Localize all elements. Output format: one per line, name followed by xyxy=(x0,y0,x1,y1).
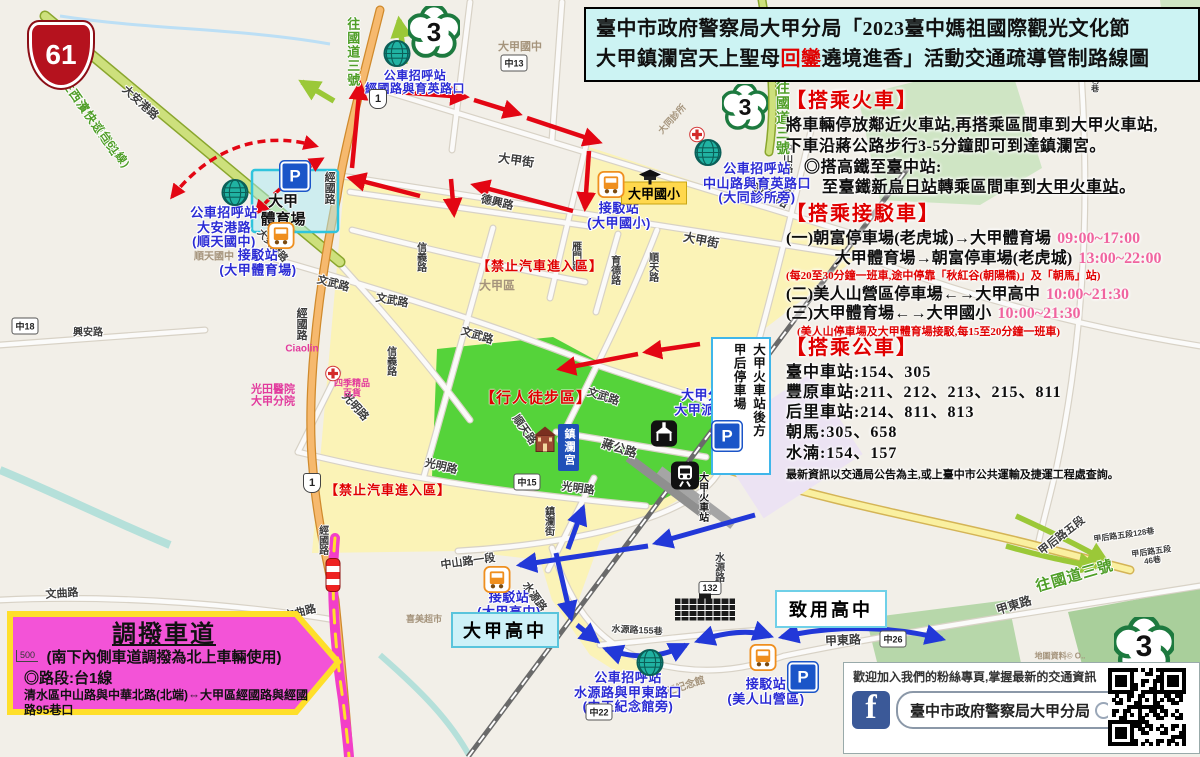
shuttle-route: (二)美人山營區停車場←→大甲高中 xyxy=(786,286,1040,303)
bus-line: 后里車站:214、811、813 xyxy=(786,403,1198,423)
train-line3: ◎搭高鐵至臺中站: xyxy=(786,158,1198,179)
zhiyong-highschool-label: 致用高中 xyxy=(775,590,887,628)
bus-lines: 臺中車站:154、305豐原車站:211、212、213、215、811后里車站… xyxy=(786,363,1198,464)
shuttle-time: 09:00~17:00 xyxy=(1057,230,1140,247)
train-line1: 將車輛停放鄰近火車站,再搭乘區間車到大甲火車站, xyxy=(786,116,1198,137)
lane-line3: 清水區中山路與中華北路(北端)⇔大甲區經國路與經國路95巷口 xyxy=(20,688,308,718)
shuttle-route: 大甲體育場→朝富停車場(老虎城) xyxy=(786,250,1072,267)
shuttle-row: (三)大甲體育場←→大甲國小10:00~21:30 xyxy=(786,304,1198,324)
shuttle-header: 【搭乘接駁車】 xyxy=(786,197,1198,226)
stadium-label: 大甲 體育場 xyxy=(260,193,305,229)
shuttle-row: (二)美人山營區停車場←→大甲高中10:00~21:30 xyxy=(786,285,1198,305)
title-line1: 臺中市政府警察局大甲分局「2023臺中媽祖國際觀光文化節 xyxy=(596,14,1190,44)
train-line2: 下車沿蔣公路步行3-5分鐘即可到達鎮瀾宮。 xyxy=(786,137,1198,158)
train-info-section: 【搭乘火車】 將車輛停放鄰近火車站,再搭乘區間車到大甲火車站, 下車沿蔣公路步行… xyxy=(786,84,1198,199)
contraflow-lane-box: 調撥車道 (南下內側車道調撥為北上車輛使用) ◎路段:台1線 清水區中山路與中華… xyxy=(6,610,346,716)
station-rear-parking-label: 大甲火車站後方 甲后停車場 xyxy=(711,337,771,475)
lane-line1: (南下內側車道調撥為北上車輛使用) xyxy=(20,649,308,667)
map-title: 臺中市政府警察局大甲分局「2023臺中媽祖國際觀光文化節 大甲鎮瀾宮天上聖母回鑾… xyxy=(584,7,1200,82)
scale-marker: 500 xyxy=(16,650,38,662)
lane-line2: ◎路段:台1線 xyxy=(20,667,308,688)
shuttle-note: (每20至30分鐘一班車,途中停靠「秋紅谷(朝陽橋)」及「朝馬」站) xyxy=(786,268,1198,285)
parking-label-line2: 甲后停車場 xyxy=(728,343,747,469)
shuttle-time: 10:00~21:30 xyxy=(997,305,1080,322)
bus-info-section: 【搭乘公車】 臺中車站:154、305豐原車站:211、212、213、215、… xyxy=(786,331,1198,482)
title-highlight: 回鑾 xyxy=(781,48,822,70)
title-line2: 大甲鎮瀾宮天上聖母回鑾遶境進香」活動交通疏導管制路線圖 xyxy=(596,44,1190,74)
shuttle-row: 大甲體育場→朝富停車場(老虎城)13:00~22:00 xyxy=(786,249,1198,269)
bus-note: 最新資訊以交通局公告為主,或上臺中市公共運輸及捷運工程處查詢。 xyxy=(786,466,1198,482)
bus-line: 臺中車站:154、305 xyxy=(786,363,1198,383)
parking-label-line1: 大甲火車站後方 xyxy=(748,343,767,469)
shuttle-info-section: 【搭乘接駁車】 (一)朝富停車場(老虎城)→大甲體育場09:00~17:00 大… xyxy=(786,197,1198,340)
shuttle-route: (一)朝富停車場(老虎城)→大甲體育場 xyxy=(786,230,1051,247)
shuttle-time: 13:00~22:00 xyxy=(1078,250,1161,267)
facebook-icon[interactable]: f xyxy=(852,691,890,729)
shuttle-row: (一)朝富停車場(老虎城)→大甲體育場09:00~17:00 xyxy=(786,229,1198,249)
fanpage-search[interactable]: 臺中市政府警察局大甲分局 xyxy=(896,691,1128,729)
qr-code xyxy=(1108,668,1186,746)
fanpage-message: 歡迎加入我們的粉絲專頁,掌握最新的交通資訊 xyxy=(853,668,1096,685)
bus-line: 朝馬:305、658 xyxy=(786,423,1198,443)
fanpage-search-text: 臺中市政府警察局大甲分局 xyxy=(910,700,1090,721)
traffic-control-map: 文武路文武路文武路文武路育英路大甲街大甲街德興路雁門路中山路一段中山路一段蔣公路… xyxy=(0,0,1200,757)
dajia-elementary-label: 大甲國小 xyxy=(621,182,687,205)
dajia-highschool-label: 大甲高中 xyxy=(451,612,559,648)
train-header: 【搭乘火車】 xyxy=(786,84,1198,113)
jennlann-temple-label: 鎮瀾宮 xyxy=(558,424,579,471)
shuttle-time: 10:00~21:30 xyxy=(1046,286,1129,303)
bus-line: 水湳:154、157 xyxy=(786,444,1198,464)
bus-header: 【搭乘公車】 xyxy=(786,331,1198,360)
shuttle-rows: (一)朝富停車場(老虎城)→大甲體育場09:00~17:00 大甲體育場→朝富停… xyxy=(786,229,1198,340)
bus-line: 豐原車站:211、212、213、215、811 xyxy=(786,383,1198,403)
lane-title: 調撥車道 xyxy=(20,614,308,649)
shuttle-route: (三)大甲體育場←→大甲國小 xyxy=(786,305,991,322)
